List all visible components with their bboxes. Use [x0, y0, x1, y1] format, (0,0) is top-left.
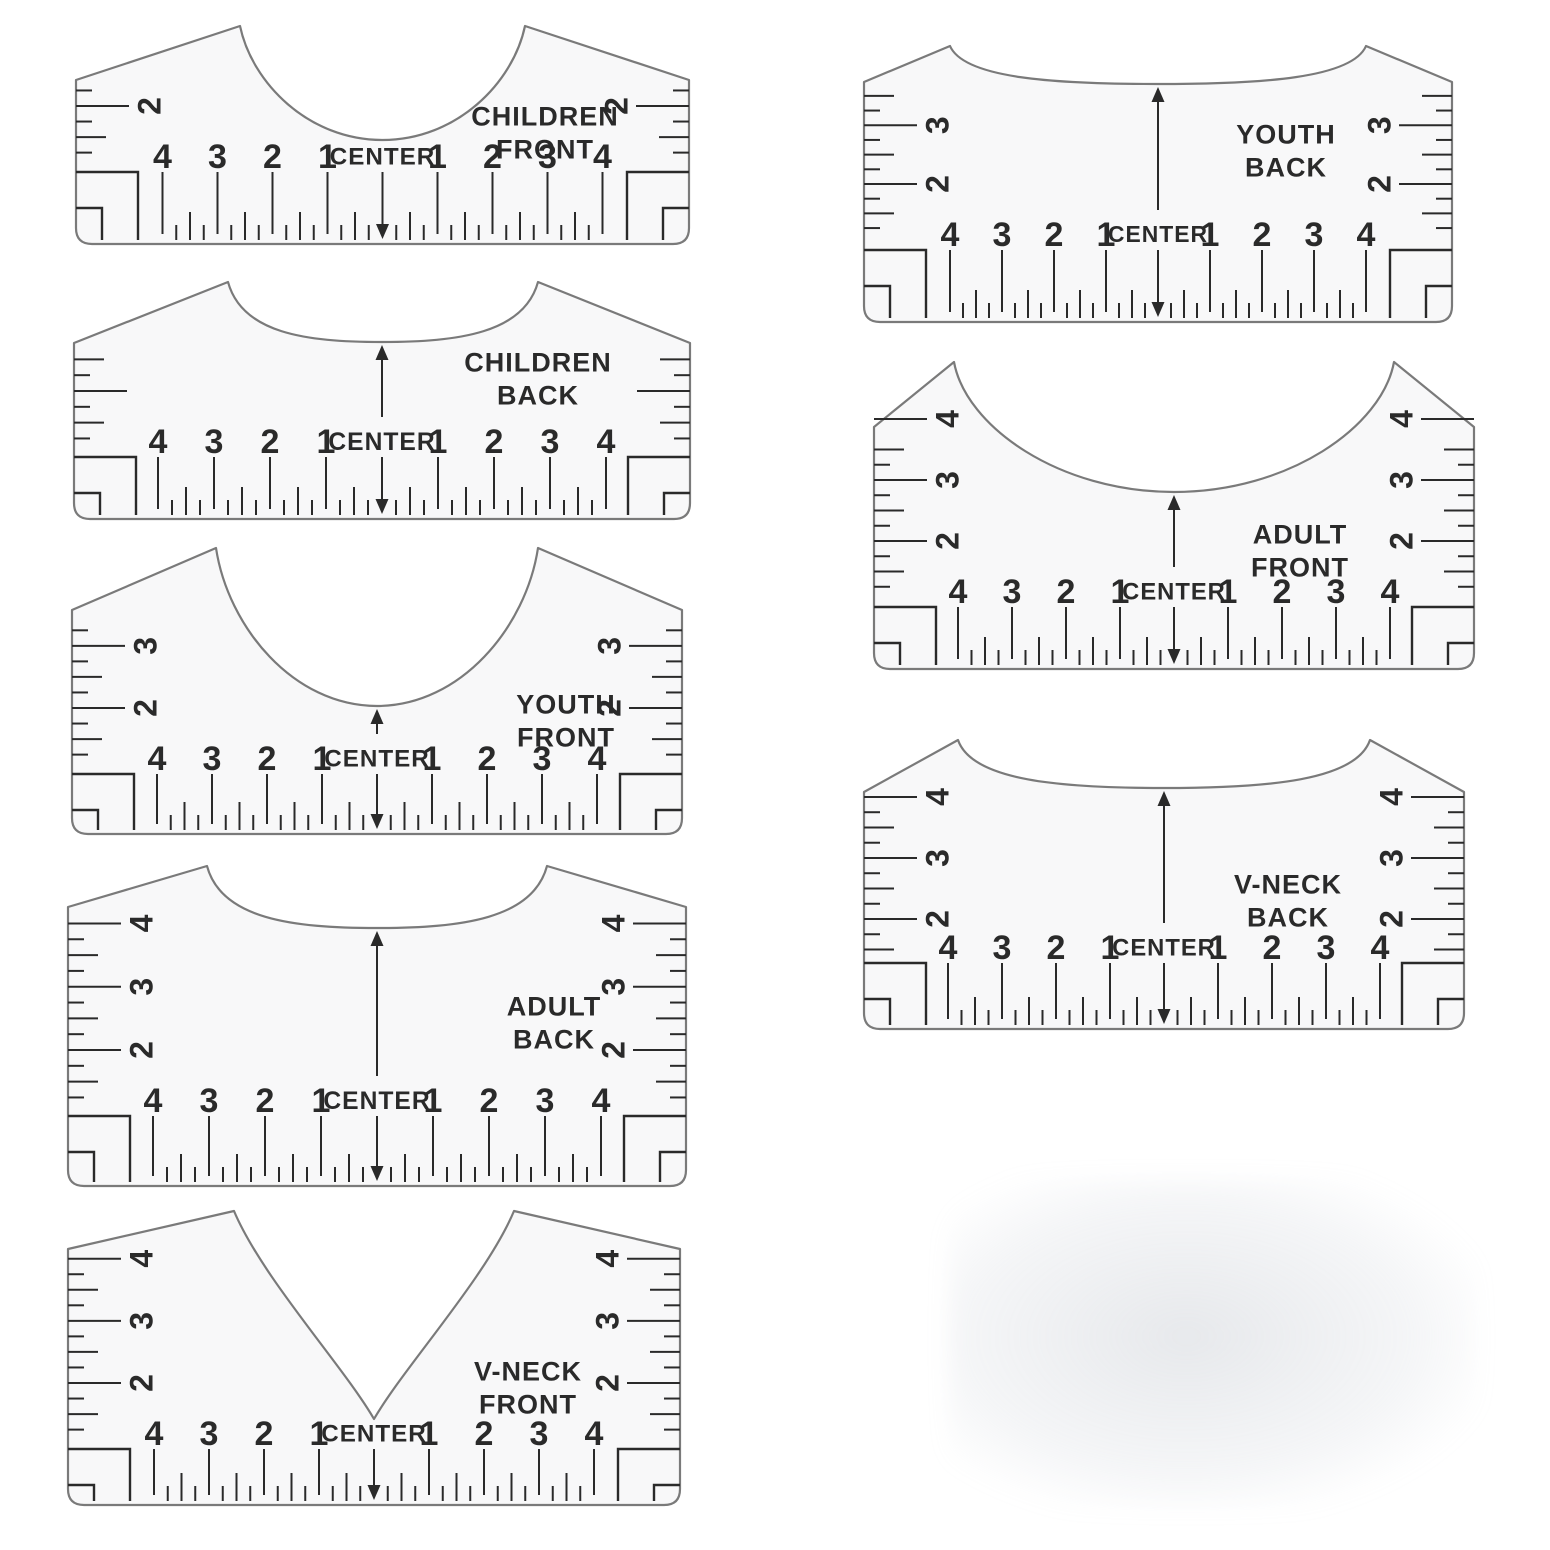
side-scale-number: 2: [596, 1041, 632, 1059]
scale-number: 2: [480, 1082, 499, 1120]
side-scale-number: 2: [128, 699, 164, 717]
side-scale-number: 2: [1362, 175, 1398, 193]
side-scale-number: 4: [596, 914, 632, 932]
scale-number: 3: [1003, 573, 1022, 611]
center-label: CENTER: [324, 746, 429, 773]
side-scale-number: 3: [124, 978, 160, 996]
ruler-label-line1: V-NECK: [1234, 870, 1342, 900]
scale-number: 4: [939, 929, 958, 967]
side-scale-number: 4: [920, 788, 956, 806]
ruler-label-line2: BACK: [513, 1025, 595, 1055]
scale-number: 2: [485, 423, 504, 461]
scale-number: 3: [200, 1415, 219, 1453]
scale-number: 4: [1371, 929, 1390, 967]
scale-number: 4: [1357, 216, 1376, 254]
scale-number: 3: [541, 423, 560, 461]
ruler-label-line2: FRONT: [1251, 553, 1349, 583]
scale-number: 1: [1209, 929, 1228, 967]
side-scale-number: 3: [128, 637, 164, 655]
ruler-children-front: 4321CENTER123422CHILDRENFRONT: [70, 18, 695, 252]
side-scale-number: 2: [920, 910, 956, 928]
ruler-youth-front: 4321CENTER12342323YOUTHFRONT: [66, 540, 688, 842]
scale-number: 2: [261, 423, 280, 461]
ruler-label-line1: V-NECK: [474, 1357, 582, 1387]
scale-number: 1: [1201, 216, 1220, 254]
scale-number: 1: [420, 1415, 439, 1453]
scale-number: 4: [597, 423, 616, 461]
scale-number: 1: [424, 1082, 443, 1120]
side-scale-number: 4: [1374, 788, 1410, 806]
scale-number: 2: [1045, 216, 1064, 254]
center-label: CENTER: [1108, 221, 1208, 247]
ruler-adult-front: 4321CENTER1234234234ADULTFRONT: [868, 352, 1480, 677]
side-scale-number: 4: [930, 410, 966, 428]
side-scale-number: 2: [590, 1374, 626, 1392]
ruler-children-back: 4321CENTER1234CHILDRENBACK: [68, 272, 696, 527]
scale-number: 3: [530, 1415, 549, 1453]
scale-number: 2: [263, 138, 282, 176]
scale-number: 2: [475, 1415, 494, 1453]
side-scale-number: 4: [124, 914, 160, 932]
side-scale-number: 2: [1374, 910, 1410, 928]
scale-number: 3: [205, 423, 224, 461]
ruler-youth-back: 4321CENTER12342323YOUTHBACK: [858, 38, 1458, 330]
side-scale-number: 4: [1384, 410, 1420, 428]
scale-number: 4: [144, 1082, 163, 1120]
side-scale-number: 4: [124, 1250, 160, 1268]
side-scale-number: 3: [920, 116, 956, 134]
scale-number: 4: [941, 216, 960, 254]
scale-number: 2: [1047, 929, 1066, 967]
scale-number: 2: [478, 740, 497, 778]
fabric-shadow: [948, 1178, 1478, 1508]
side-scale-number: 3: [930, 471, 966, 489]
scale-number: 3: [200, 1082, 219, 1120]
scale-number: 2: [1263, 929, 1282, 967]
side-scale-number: 3: [920, 849, 956, 867]
ruler-label-line1: YOUTH: [516, 690, 616, 720]
side-scale-number: 3: [1384, 471, 1420, 489]
side-scale-number: 3: [1374, 849, 1410, 867]
ruler-label-line2: FRONT: [496, 135, 594, 165]
scale-number: 4: [1381, 573, 1400, 611]
scale-number: 2: [1057, 573, 1076, 611]
ruler-label-line1: CHILDREN: [464, 348, 612, 378]
ruler-label-line2: BACK: [1245, 153, 1327, 183]
side-scale-number: 3: [590, 1312, 626, 1330]
scale-number: 1: [423, 740, 442, 778]
side-scale-number: 2: [930, 532, 966, 550]
ruler-v-neck-front: 4321CENTER1234234234V-NECKFRONT: [62, 1203, 686, 1513]
ruler-label-line2: BACK: [1247, 903, 1329, 933]
scale-number: 2: [255, 1415, 274, 1453]
scale-number: 4: [148, 740, 167, 778]
side-scale-number: 4: [590, 1250, 626, 1268]
ruler-v-neck-back: 4321CENTER1234234234V-NECKBACK: [858, 732, 1470, 1037]
center-label: CENTER: [323, 1088, 430, 1115]
side-scale-number: 3: [592, 637, 628, 655]
ruler-label-line1: CHILDREN: [471, 102, 619, 132]
ruler-adult-back: 4321CENTER1234234234ADULTBACK: [62, 858, 692, 1194]
scale-number: 3: [208, 138, 227, 176]
ruler-label-line2: FRONT: [517, 723, 615, 753]
scale-number: 4: [585, 1415, 604, 1453]
scale-number: 3: [1317, 929, 1336, 967]
side-scale-number: 2: [124, 1374, 160, 1392]
scale-number: 2: [1253, 216, 1272, 254]
side-scale-number: 3: [124, 1312, 160, 1330]
ruler-label-line1: YOUTH: [1236, 120, 1336, 150]
scale-number: 2: [256, 1082, 275, 1120]
scale-number: 3: [993, 929, 1012, 967]
scale-number: 4: [949, 573, 968, 611]
scale-number: 2: [258, 740, 277, 778]
center-label: CENTER: [321, 1421, 426, 1448]
scale-number: 4: [149, 423, 168, 461]
center-label: CENTER: [1122, 579, 1226, 606]
ruler-label-line2: BACK: [497, 381, 579, 411]
scale-number: 4: [153, 138, 172, 176]
scale-number: 3: [536, 1082, 555, 1120]
center-label: CENTER: [1112, 935, 1216, 962]
scale-number: 4: [593, 138, 612, 176]
ruler-sheet: 4321CENTER123422CHILDRENFRONT4321CENTER1…: [0, 0, 1550, 1550]
center-label: CENTER: [328, 429, 435, 456]
scale-number: 4: [145, 1415, 164, 1453]
side-scale-number: 2: [132, 97, 168, 115]
side-scale-number: 2: [1384, 532, 1420, 550]
side-scale-number: 2: [124, 1041, 160, 1059]
ruler-label-line1: ADULT: [507, 992, 601, 1022]
scale-number: 3: [1305, 216, 1324, 254]
scale-number: 1: [1219, 573, 1238, 611]
scale-number: 1: [429, 423, 448, 461]
center-label: CENTER: [330, 144, 435, 171]
ruler-label-line2: FRONT: [479, 1390, 577, 1420]
scale-number: 4: [592, 1082, 611, 1120]
side-scale-number: 2: [920, 175, 956, 193]
side-scale-number: 3: [1362, 116, 1398, 134]
scale-number: 3: [993, 216, 1012, 254]
scale-number: 1: [428, 138, 447, 176]
ruler-label-line1: ADULT: [1253, 520, 1347, 550]
scale-number: 3: [203, 740, 222, 778]
